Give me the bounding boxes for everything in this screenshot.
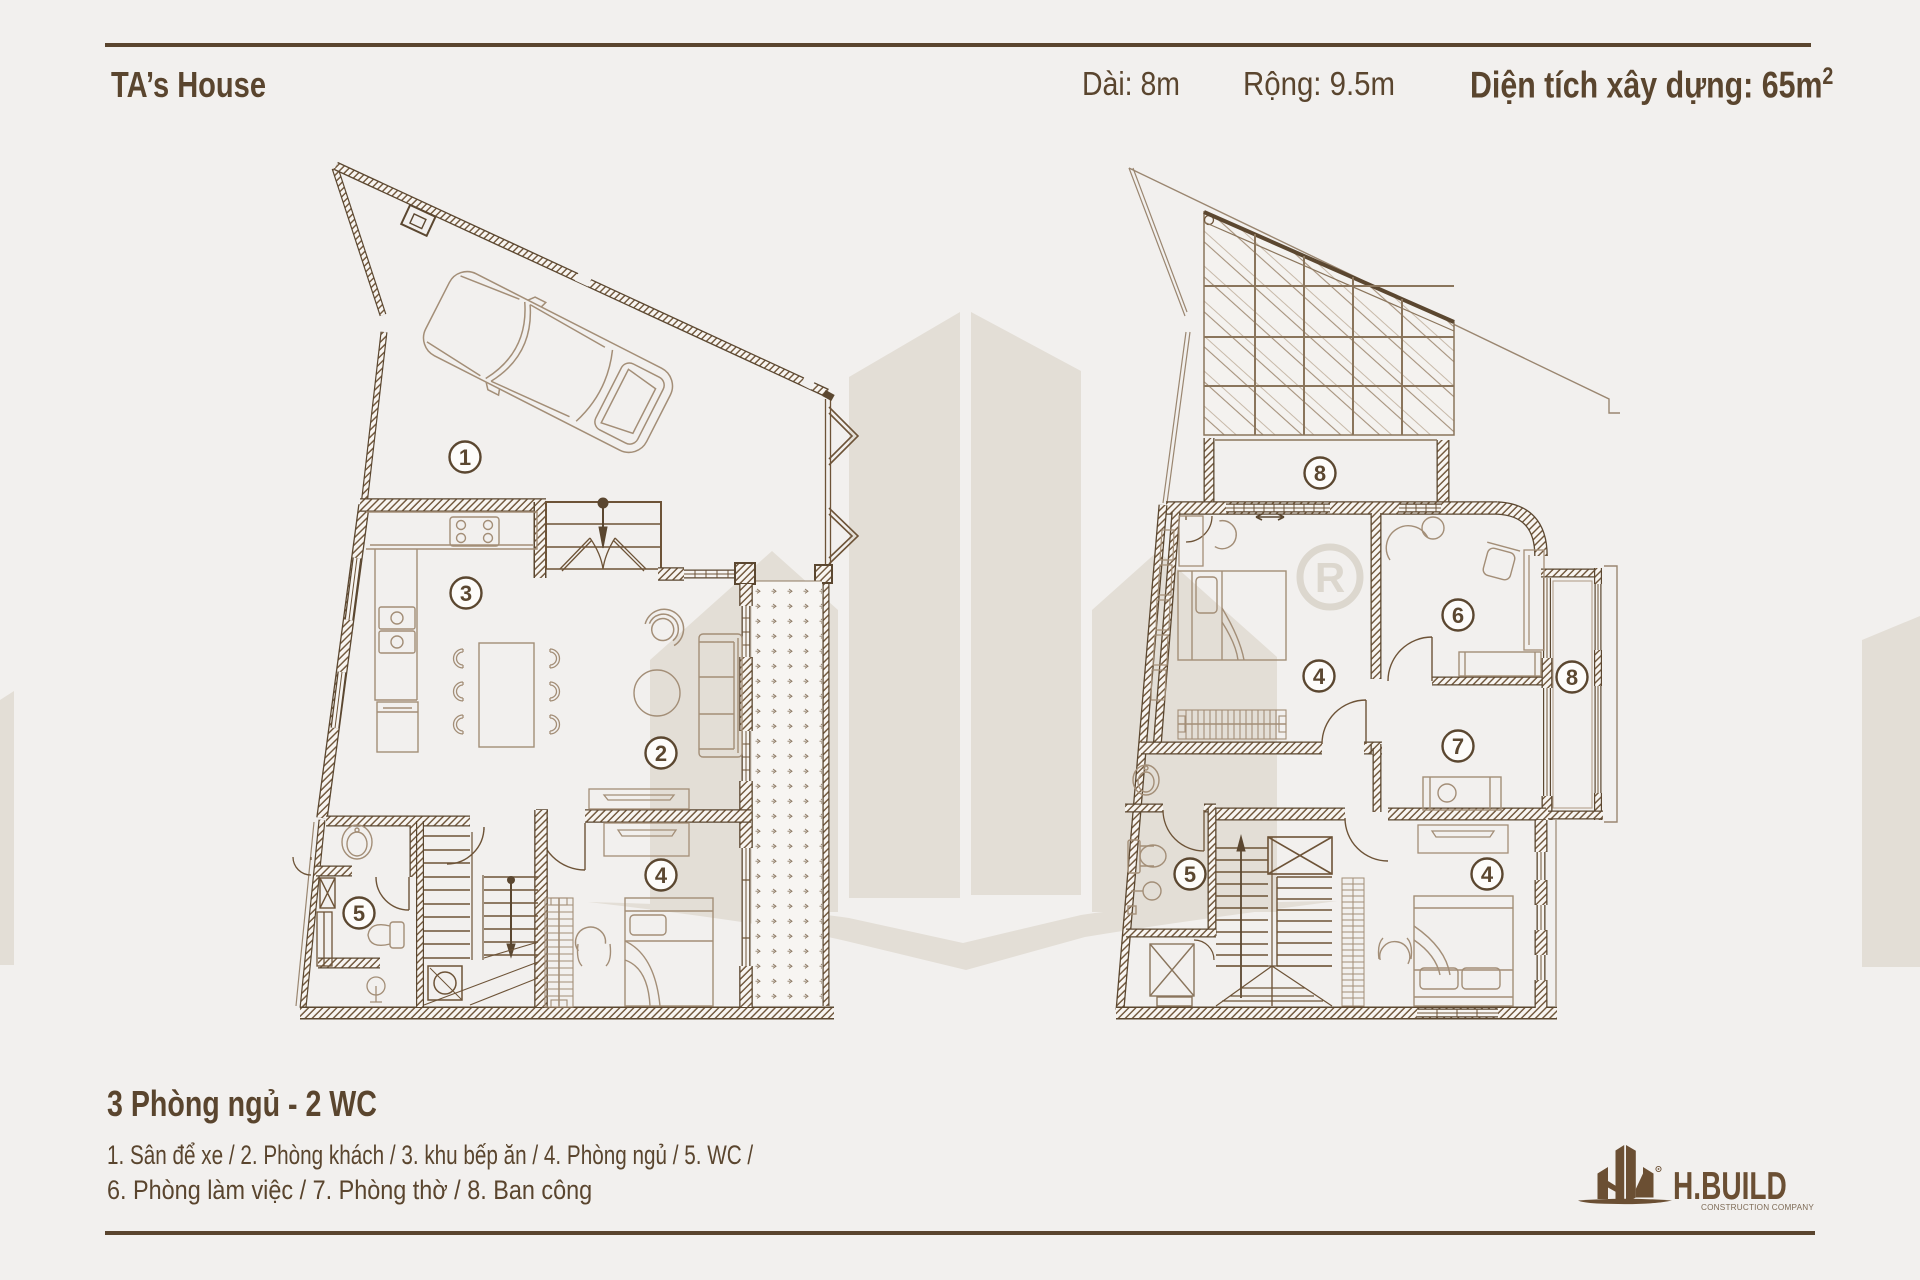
svg-text:2: 2: [655, 741, 667, 766]
svg-text:1: 1: [459, 445, 471, 470]
svg-text:5: 5: [353, 901, 365, 926]
svg-text:4: 4: [1313, 664, 1326, 689]
svg-text:7: 7: [1452, 734, 1464, 759]
svg-text:6: 6: [1452, 603, 1464, 628]
svg-text:R: R: [1315, 554, 1345, 601]
svg-text:H.BUILD: H.BUILD: [1673, 1165, 1787, 1209]
svg-text:5: 5: [1184, 862, 1196, 887]
svg-text:4: 4: [655, 863, 668, 888]
svg-text:4: 4: [1481, 862, 1494, 887]
svg-text:3: 3: [460, 581, 472, 606]
svg-text:8: 8: [1566, 665, 1578, 690]
svg-text:CONSTRUCTION COMPANY: CONSTRUCTION COMPANY: [1701, 1203, 1814, 1212]
svg-text:8: 8: [1314, 461, 1326, 486]
